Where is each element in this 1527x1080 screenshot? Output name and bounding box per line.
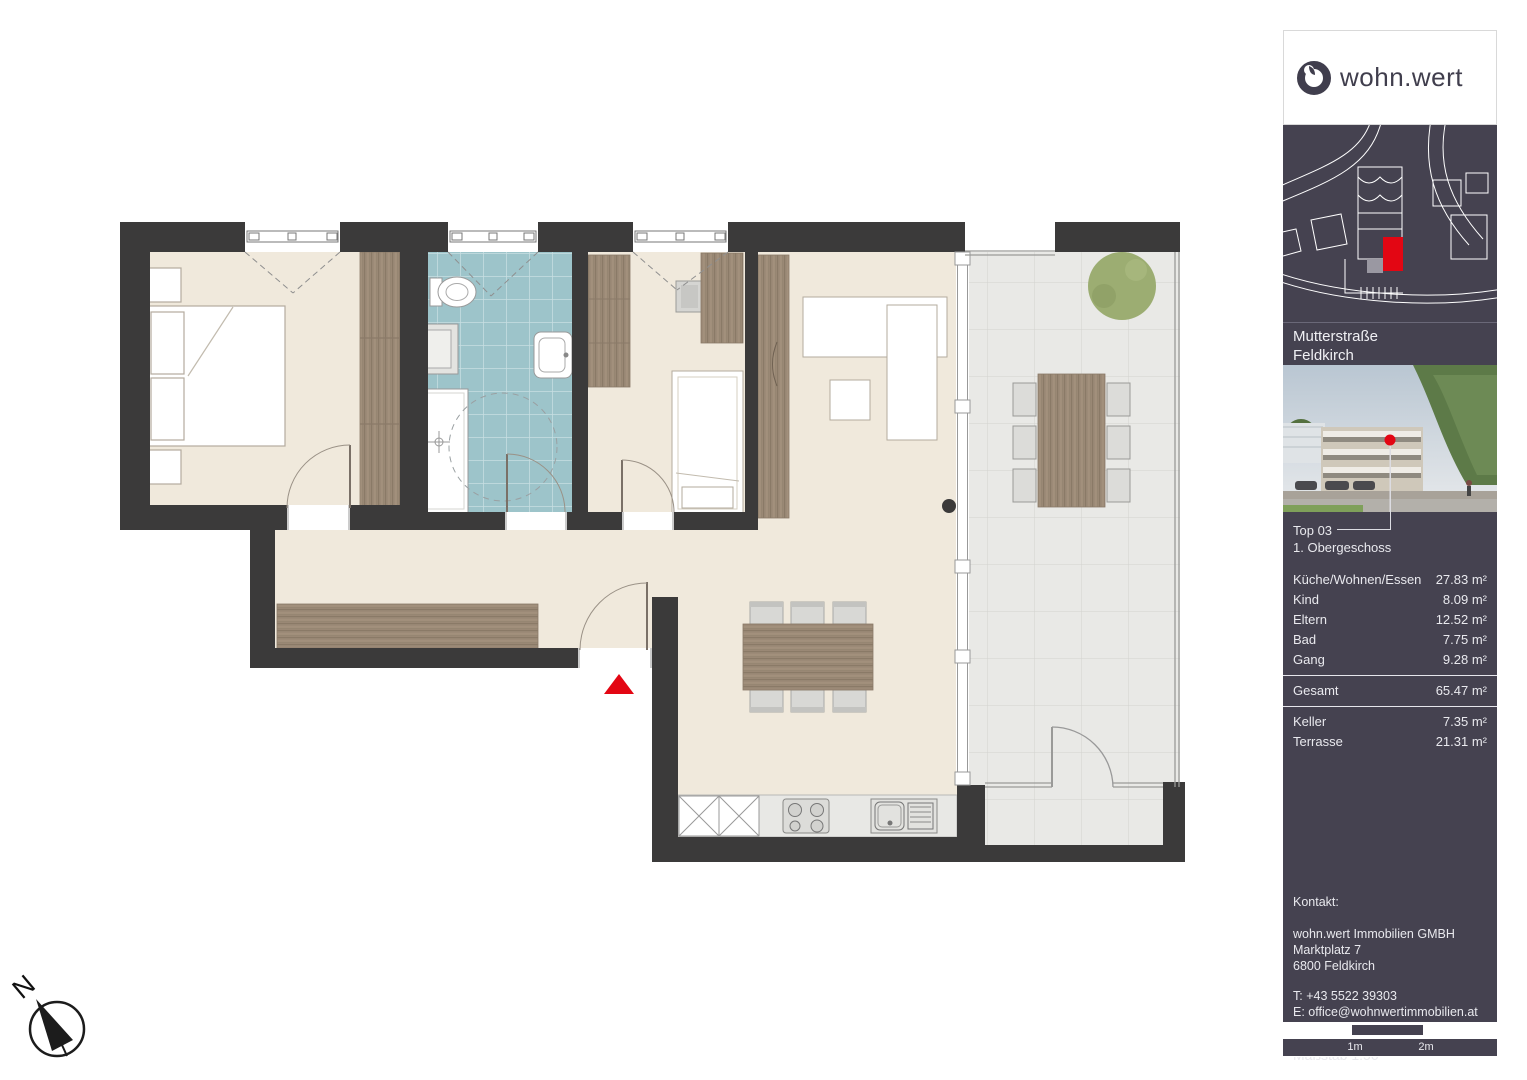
- contact-email: E: office@wohnwertimmobilien.at: [1293, 1004, 1487, 1020]
- unit-floor: 1. Obergeschoss: [1293, 539, 1487, 556]
- logo-text: wohn.wert: [1340, 62, 1463, 93]
- total-row: Gesamt65.47 m²: [1293, 681, 1487, 701]
- site-map: [1283, 125, 1497, 322]
- project-address: Mutterstraße Feldkirch: [1283, 322, 1497, 365]
- area-row: Keller7.35 m²: [1293, 712, 1487, 732]
- hall-sideboard: [277, 604, 538, 648]
- info-panel: wohn.wert: [1283, 30, 1497, 1057]
- terrace-floor: [965, 252, 1180, 845]
- contact-phone: T: +43 5522 39303: [1293, 988, 1487, 1004]
- window-bad: [448, 222, 538, 252]
- north-label: N: [7, 969, 41, 1005]
- address-city: Feldkirch: [1293, 346, 1487, 365]
- area-row: Bad7.75 m²: [1293, 630, 1487, 650]
- contact-city: 6800 Feldkirch: [1293, 958, 1487, 974]
- area-row: Eltern12.52 m²: [1293, 610, 1487, 630]
- window-eltern: [245, 222, 340, 252]
- area-row: Gang9.28 m²: [1293, 650, 1487, 670]
- kitchen-counter: [678, 795, 957, 837]
- contact-block: Kontakt: wohn.wert Immobilien GMBH Markt…: [1293, 894, 1487, 1020]
- windows: [245, 222, 728, 252]
- wohnwert-logo-icon: [1296, 60, 1332, 96]
- column-dot: [942, 499, 956, 513]
- unit-info: Top 03 1. Obergeschoss Küche/Wohnen/Esse…: [1283, 512, 1497, 1022]
- scale-bar: 1m 2m: [1283, 1022, 1497, 1057]
- area-row: Kind8.09 m²: [1293, 590, 1487, 610]
- area-row: Terrasse21.31 m²: [1293, 732, 1487, 752]
- scale-tick-1m: 1m: [1341, 1041, 1369, 1053]
- contact-street: Marktplatz 7: [1293, 942, 1487, 958]
- map-unit-highlight: [1383, 237, 1403, 271]
- marker-leader-line: [1390, 446, 1391, 530]
- address-street: Mutterstraße: [1293, 327, 1487, 346]
- logo: wohn.wert: [1283, 30, 1497, 125]
- unit-marker-dot: [1385, 435, 1396, 446]
- floorplan-sheet: WM: [0, 0, 1527, 1080]
- contact-company: wohn.wert Immobilien GMBH: [1293, 926, 1487, 942]
- floorplan-drawing: WM: [0, 0, 1240, 1080]
- contact-heading: Kontakt:: [1293, 894, 1487, 910]
- area-table: Küche/Wohnen/Essen27.83 m² Kind8.09 m² E…: [1293, 570, 1487, 752]
- glass-wall: [955, 252, 970, 785]
- scale-tick-2m: 2m: [1412, 1041, 1440, 1053]
- area-row: Küche/Wohnen/Essen27.83 m²: [1293, 570, 1487, 590]
- compass-north-icon: N: [7, 969, 84, 1056]
- window-kind: [633, 222, 728, 252]
- dining-set: [743, 602, 873, 712]
- entrance-arrow: [604, 674, 634, 694]
